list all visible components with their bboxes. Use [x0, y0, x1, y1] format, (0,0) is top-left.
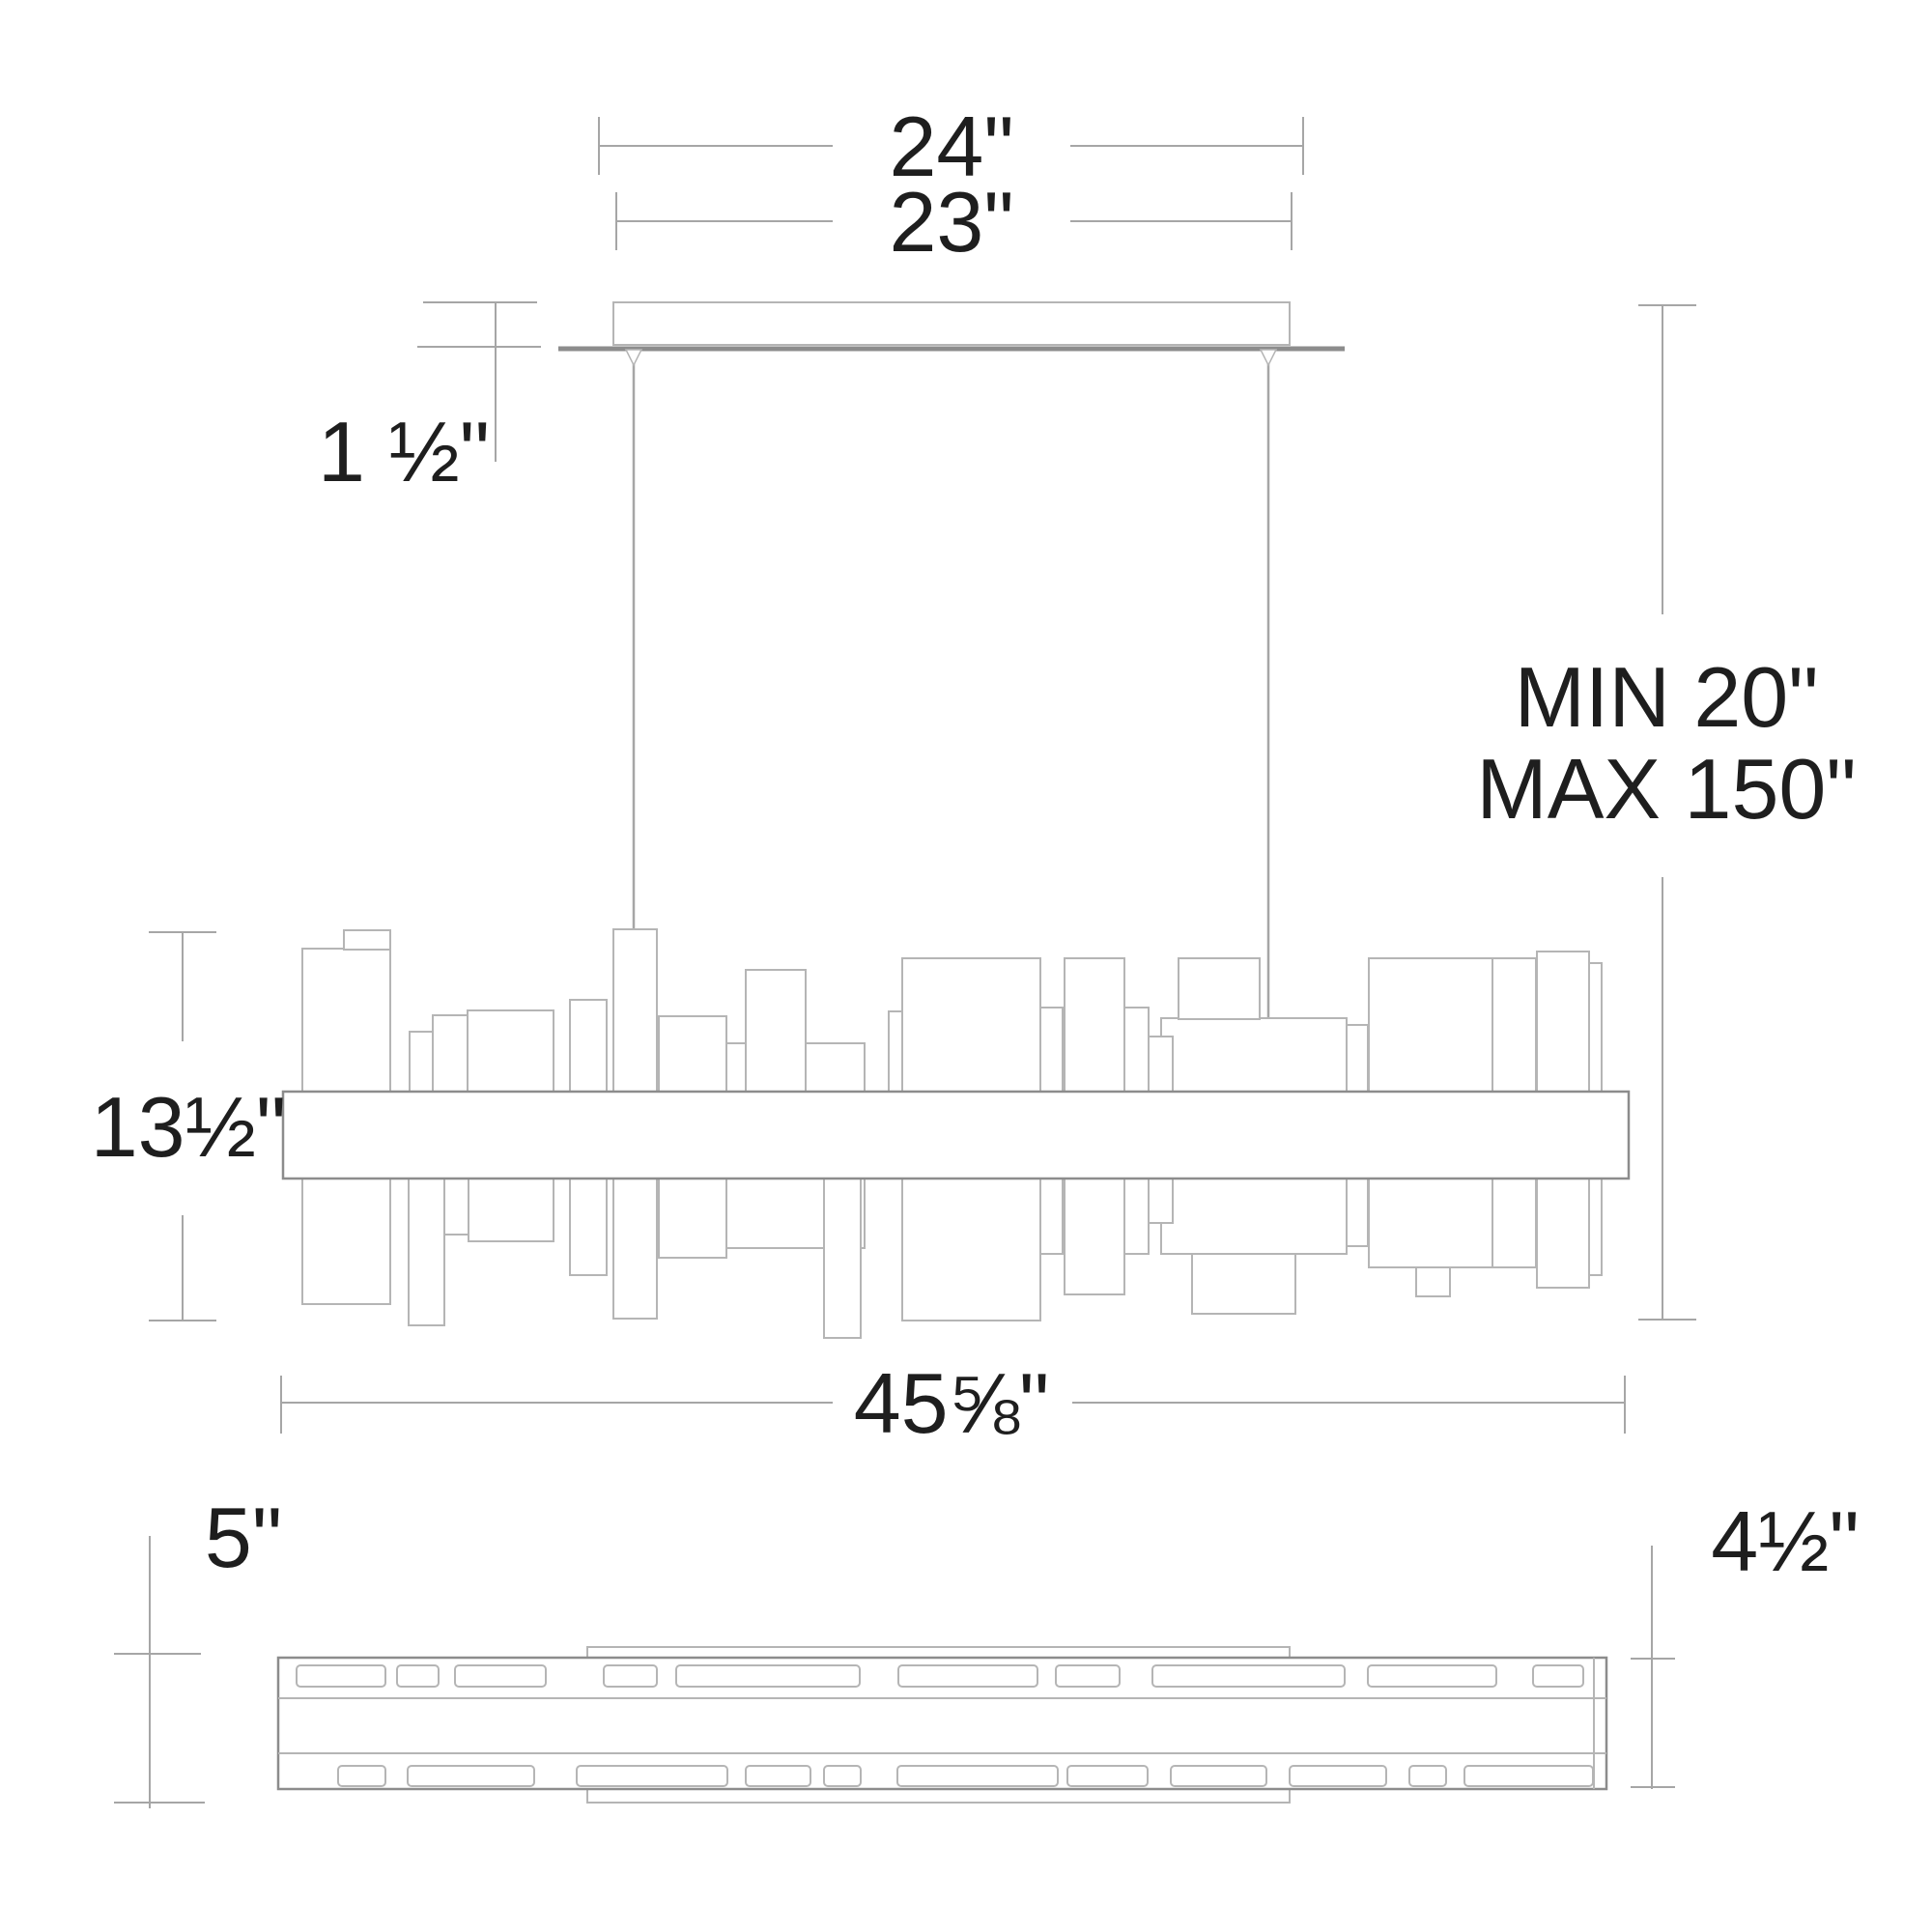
fixture-block-lower: [469, 1177, 554, 1241]
plan-slot-top: [455, 1665, 546, 1687]
fixture-block-upper: [613, 929, 657, 1094]
wire-hanger: [626, 350, 641, 365]
plan-slot-bottom: [1171, 1766, 1266, 1786]
label-canopy-width-inner: 23": [889, 174, 1013, 270]
plan-slot-top: [898, 1665, 1037, 1687]
label-side-height-overall: 5": [205, 1490, 282, 1585]
fixture-block-lower: [1065, 1177, 1124, 1294]
plan-slot-bottom: [577, 1766, 727, 1786]
fixture-block-lower: [1369, 1177, 1492, 1267]
fixture-band: [283, 1092, 1629, 1179]
fixture-block-upper: [1040, 1008, 1063, 1094]
fixture-block-lower: [1161, 1177, 1347, 1254]
plan-slot-top: [397, 1665, 439, 1687]
fixture-block-upper: [468, 1010, 554, 1094]
fixture-block-lower: [1347, 1177, 1368, 1246]
fixture-block-upper: [1369, 958, 1492, 1094]
plan-slot-bottom: [824, 1766, 861, 1786]
fixture-block-lower: [1589, 1177, 1602, 1275]
plan-slot-bottom: [746, 1766, 810, 1786]
fixture-block-lower: [570, 1177, 607, 1275]
plan-slot-top: [676, 1665, 860, 1687]
fixture-block-lower: [659, 1177, 726, 1258]
fixture-block-upper: [1589, 963, 1602, 1094]
drawing-layer: [114, 117, 1696, 1808]
fixture-block-lower: [1537, 1177, 1589, 1288]
fixture-block-upper: [1149, 1037, 1173, 1094]
fixture-block-lower: [613, 1177, 657, 1319]
fixture-block-upper: [1492, 958, 1536, 1094]
fixture-block-upper: [1179, 958, 1260, 1019]
plan-slot-top: [1152, 1665, 1345, 1687]
fixture-block-upper: [659, 1016, 726, 1094]
fixture-block-upper: [902, 958, 1040, 1094]
plan-slot-bottom: [338, 1766, 385, 1786]
plan-slot-bottom: [1409, 1766, 1446, 1786]
label-side-height-body: 4½": [1711, 1493, 1860, 1589]
plan-slot-top: [1056, 1665, 1120, 1687]
fixture-block-upper: [889, 1011, 902, 1094]
fixture-block-upper: [1065, 958, 1124, 1094]
plan-slot-top: [604, 1665, 657, 1687]
diagram-page: 24" 23" 1 ½" MIN 20" MAX 150" 13½" 45⅝" …: [0, 0, 1932, 1932]
fixture-block-lower: [1040, 1177, 1063, 1254]
fixture-block-lower: [1416, 1267, 1450, 1296]
fixture-block-lower: [1492, 1177, 1536, 1267]
label-fixture-height: 13½": [91, 1079, 287, 1175]
fixture-block-upper: [1537, 952, 1589, 1094]
plan-slot-bottom: [1290, 1766, 1386, 1786]
plan-slot-bottom: [408, 1766, 534, 1786]
wire-hanger: [1261, 350, 1276, 365]
fixture-block-upper: [302, 949, 390, 1094]
fixture-block-upper: [1161, 1018, 1347, 1094]
fixture-block-lower: [1149, 1177, 1173, 1223]
fixture-block-lower: [1192, 1254, 1295, 1314]
fixture-dimension-diagram: 24" 23" 1 ½" MIN 20" MAX 150" 13½" 45⅝" …: [0, 0, 1932, 1932]
fixture-block-lower: [409, 1177, 444, 1325]
fixture-block-upper: [1124, 1008, 1149, 1094]
plan-slot-bottom: [1067, 1766, 1148, 1786]
fixture-block-upper: [433, 1015, 470, 1094]
fixture-block-lower: [444, 1177, 469, 1235]
plan-slot-bottom: [897, 1766, 1058, 1786]
fixture-block-upper: [344, 930, 390, 950]
canopy-outline: [613, 302, 1290, 345]
fixture-block-upper: [746, 970, 806, 1094]
label-suspension-max: MAX 150": [1476, 741, 1856, 837]
plan-slot-top: [1368, 1665, 1496, 1687]
fixture-block-lower: [902, 1177, 1040, 1321]
plan-slot-top: [1533, 1665, 1583, 1687]
label-suspension-min: MIN 20": [1515, 649, 1819, 745]
plan-slot-bottom: [1464, 1766, 1593, 1786]
plan-slot-top: [297, 1665, 385, 1687]
fixture-block-lower: [1124, 1177, 1149, 1254]
label-canopy-height: 1 ½": [318, 404, 490, 499]
fixture-block-lower: [824, 1177, 861, 1338]
fixture-block-upper: [570, 1000, 607, 1094]
label-fixture-length: 45⅝": [854, 1355, 1050, 1451]
fixture-block-lower: [302, 1177, 390, 1304]
fixture-block-upper: [1347, 1025, 1368, 1094]
